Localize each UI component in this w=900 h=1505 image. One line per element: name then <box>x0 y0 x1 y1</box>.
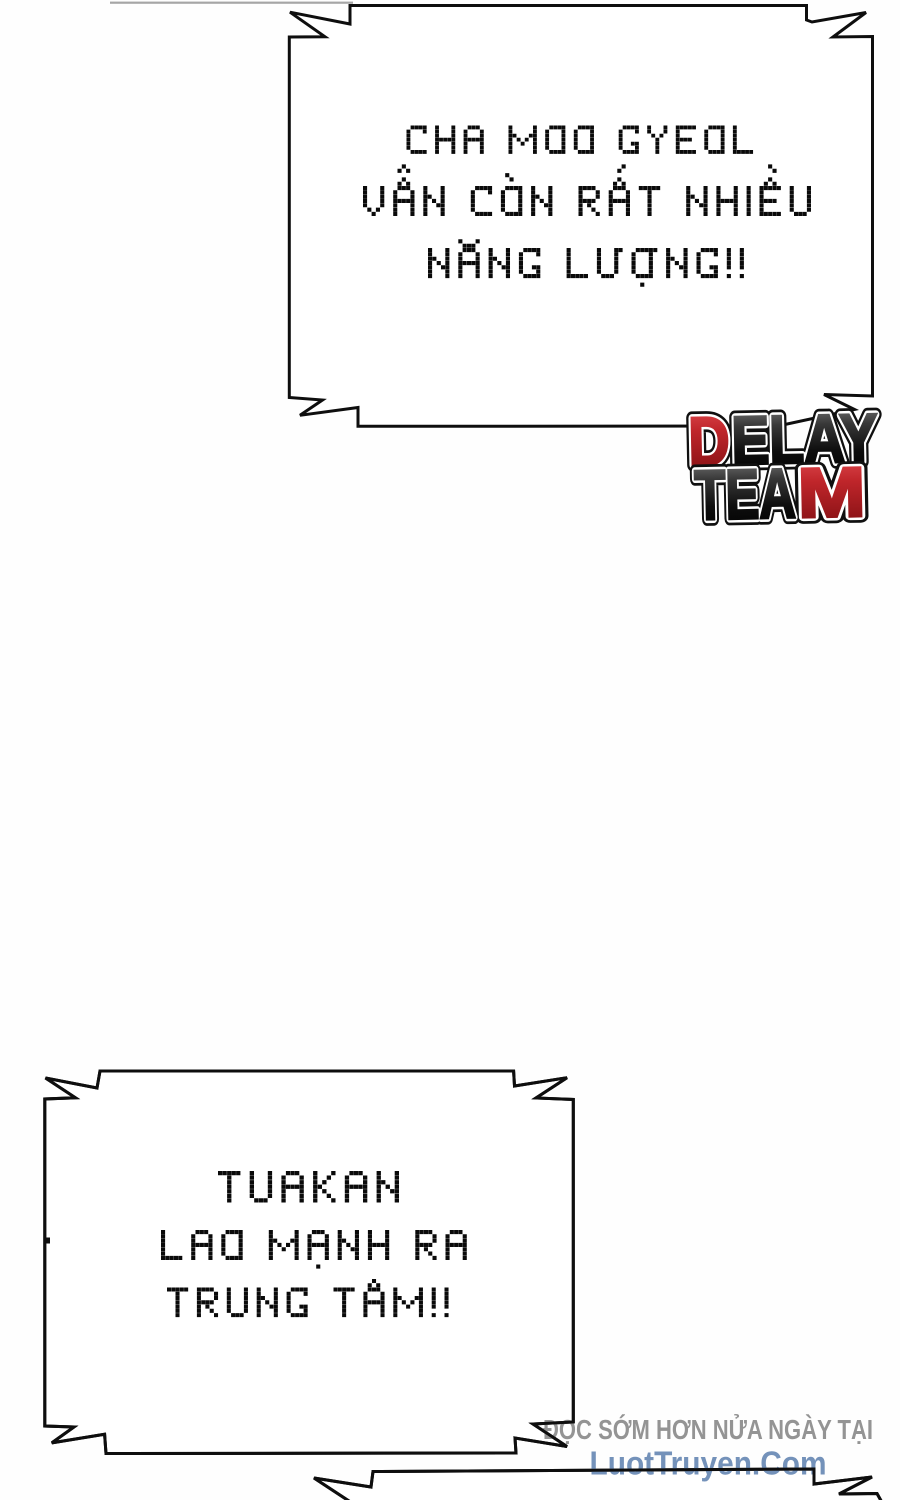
svg-text:ĐỌC SỚM HƠN NỬA NGÀY TẠI: ĐỌC SỚM HƠN NỬA NGÀY TẠI <box>543 1413 873 1445</box>
svg-text:TEA: TEA <box>694 454 797 534</box>
svg-text:M: M <box>797 453 867 532</box>
svg-text:LuotTruyen.Com: LuotTruyen.Com <box>590 1446 827 1483</box>
